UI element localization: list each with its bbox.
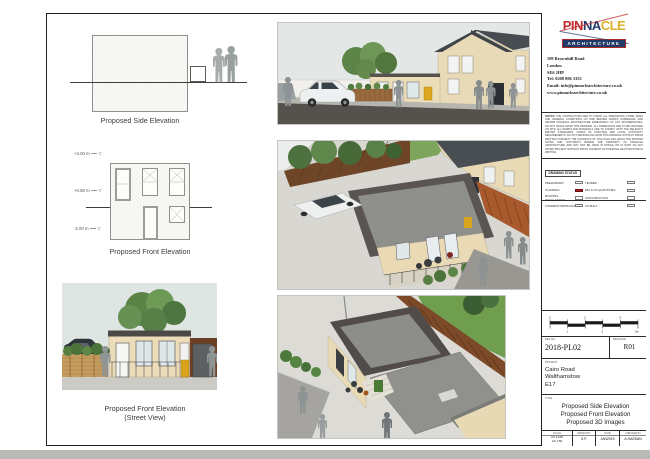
graphic-scale-bar: 0 1 2 3 4 5m — [546, 311, 642, 336]
render-street-perspective — [277, 22, 530, 125]
address-line: Email: info@pinnaclearchitecture.co.uk — [547, 83, 646, 90]
project-line: E17 — [545, 382, 646, 390]
status-row: PRELIMINARY TENDER — [545, 179, 643, 187]
address-block: 109 Brownhill Road London SE6 2HP Tel: 0… — [542, 52, 646, 112]
level-value: -2.00 m — [74, 226, 89, 231]
window-glazing-lines — [110, 163, 190, 240]
drawing-status-heading: DRAWING STATUS — [545, 170, 581, 177]
status-label: PRELIMINARY — [545, 181, 575, 185]
ref-no-label: REF NO — [545, 338, 609, 341]
level-marker-top: +3.00 m ▽ — [74, 151, 102, 156]
notes-body: THE CONTRACTORS ARE TO CHECK ALL DIMENSI… — [545, 115, 643, 154]
status-label: PLANNING — [545, 188, 575, 192]
address-line: Tel: 0208 806 5353 — [547, 76, 646, 83]
ref-no-cell: REF NO 2018-PL02 — [542, 337, 609, 358]
side-elevation-wall — [92, 35, 188, 112]
notes-block: NOTES: THE CONTRACTORS ARE TO CHECK ALL … — [542, 112, 646, 158]
blank-section — [542, 200, 646, 310]
drawn-by-value: S.P. — [573, 437, 595, 441]
project-label: PROJECT — [545, 361, 646, 364]
sheet-title-label: TITLE — [545, 397, 646, 400]
render-aerial-view — [277, 140, 530, 290]
checked-by-label: CHECKED BY — [620, 431, 646, 436]
level-leader — [91, 190, 97, 191]
drawing-status-block: DRAWING STATUS PRELIMINARY TENDER PLANNI… — [542, 158, 646, 200]
address-line: SE6 2HP — [547, 70, 646, 77]
side-elevation-caption: Proposed Side Elevation — [60, 116, 220, 125]
drawn-by-cell: DRAWN BY S.P. — [572, 431, 595, 446]
svg-text:2: 2 — [584, 316, 586, 320]
sheet-info-row: SCALE A3 1:100 A4 1:50 DRAWN BY S.P. DAT… — [542, 430, 646, 446]
entourage-people-icon — [211, 46, 239, 84]
date-cell: DATE JAN2019 — [595, 431, 619, 446]
checked-by-cell: CHECKED BY A.HASSAN — [619, 431, 646, 446]
side-elevation-door — [190, 66, 206, 82]
project-line: Cairo Road — [545, 367, 646, 375]
address-line: 109 Brownhill Road — [547, 56, 646, 63]
yellow-bin — [464, 217, 472, 228]
svg-text:5m: 5m — [635, 330, 640, 334]
level-value: +3.00 m — [74, 151, 90, 156]
logo-part-gold: CLE — [601, 18, 626, 33]
scale-bar-section: 0 1 2 3 4 5m — [542, 310, 646, 336]
ref-revision-row: REF NO 2018-PL02 REVISION R01 — [542, 336, 646, 358]
revision-value: R01 — [613, 343, 646, 351]
ref-no-value: 2018-PL02 — [545, 343, 609, 352]
status-checkbox-tender — [627, 181, 635, 184]
svg-text:0: 0 — [549, 316, 551, 320]
level-marker-mid: +0.50 m ▽ — [74, 188, 102, 193]
status-label: TENDER — [585, 181, 627, 185]
level-symbol-icon: ▽ — [98, 227, 101, 231]
building — [108, 331, 191, 378]
page-bottom-edge — [0, 450, 650, 459]
level-leader — [91, 153, 97, 154]
level-symbol-icon: ▽ — [99, 152, 102, 156]
level-marker-bottom: -2.00 m ▽ — [74, 226, 101, 231]
sheet-title-line: Proposed 3D Images — [545, 419, 646, 427]
sheet-title-block: TITLE Proposed Side Elevation Proposed F… — [542, 394, 646, 430]
ground-line-left — [86, 207, 110, 208]
svg-text:1: 1 — [567, 330, 569, 334]
project-block: PROJECT Cairo Road Walthamstow E17 — [542, 358, 646, 394]
ground-line-right — [190, 207, 212, 208]
status-checkbox-planning — [575, 189, 583, 192]
render-aerial-close-view — [277, 295, 506, 439]
level-leader — [90, 228, 96, 229]
checked-by-value: A.HASSAN — [620, 437, 646, 441]
address-line: www.pinnaclearchitecture.co.uk — [547, 90, 646, 97]
status-label: BILLS OF QUANTITIES — [585, 188, 627, 192]
street-view-caption-2: (Street View) — [60, 413, 230, 422]
drawn-by-label: DRAWN BY — [573, 431, 595, 436]
front-elevation-caption: Proposed Front Elevation — [70, 247, 230, 256]
sheet-title-line: Proposed Side Elevation — [545, 403, 646, 411]
level-value: +0.50 m — [74, 188, 90, 193]
yellow-bin — [424, 87, 432, 100]
date-value: JAN2019 — [596, 437, 619, 441]
svg-text:3: 3 — [602, 330, 604, 334]
title-block: PINNACLE ARCHITECTURE ARCHITECTURAL DESI… — [541, 13, 645, 446]
date-label: DATE — [596, 431, 619, 436]
drawing-sheet: Proposed Side Elevation +3.00 m ▽ +0.50 … — [0, 0, 650, 459]
level-symbol-icon: ▽ — [99, 189, 102, 193]
scale-value: A4 1:50 — [542, 440, 572, 444]
street-view-caption-1: Proposed Front Elevation — [60, 404, 230, 413]
status-checkbox-bills — [627, 189, 635, 192]
address-line: London — [547, 63, 646, 70]
street-view-render — [62, 283, 217, 390]
status-row: PLANNING BILLS OF QUANTITIES — [545, 187, 643, 195]
svg-text:4: 4 — [619, 316, 621, 320]
project-line: Walthamstow — [545, 374, 646, 382]
green-bin — [374, 380, 383, 392]
status-checkbox-preliminary — [575, 181, 583, 184]
logo-block: PINNACLE ARCHITECTURE ARCHITECTURAL DESI… — [542, 13, 646, 52]
revision-cell: REVISION R01 — [609, 337, 646, 358]
yellow-bin — [181, 360, 189, 377]
revision-label: REVISION — [613, 338, 646, 341]
scale-cell: SCALE A3 1:100 A4 1:50 — [542, 431, 572, 446]
sheet-title-line: Proposed Front Elevation — [545, 411, 646, 419]
